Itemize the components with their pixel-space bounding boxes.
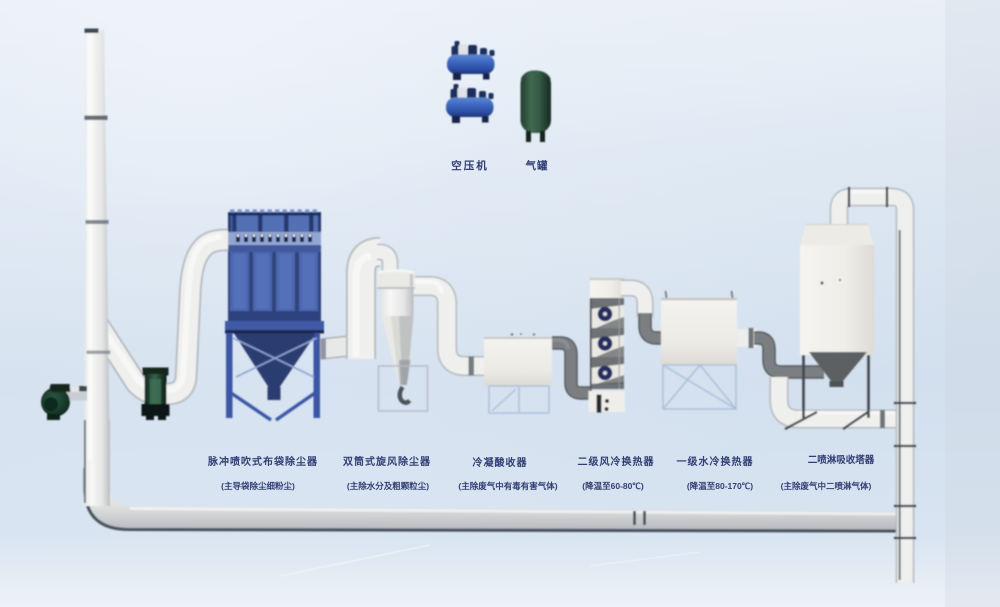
svg-text:(降温至60-80℃): (降温至60-80℃)	[582, 481, 644, 491]
svg-text:(主除废气中二喷淋气体): (主除废气中二喷淋气体)	[781, 481, 872, 491]
svg-text:空压机: 空压机	[451, 159, 489, 172]
svg-text:(降温至80-170℃): (降温至80-170℃)	[687, 481, 753, 491]
svg-text:气罐: 气罐	[525, 159, 549, 172]
svg-text:一级水冷换热器: 一级水冷换热器	[677, 455, 754, 468]
svg-text:冷凝酸收器: 冷凝酸收器	[473, 456, 528, 469]
svg-text:二级风冷换热器: 二级风冷换热器	[578, 455, 655, 468]
svg-text:脉冲喷吹式布袋除尘器: 脉冲喷吹式布袋除尘器	[207, 455, 318, 468]
svg-text:(主导袋除尘细粉尘): (主导袋除尘细粉尘)	[221, 481, 295, 491]
svg-text:(主除废气中有毒有害气体): (主除废气中有毒有害气体)	[458, 481, 557, 491]
svg-text:(主除水分及粗颗粒尘): (主除水分及粗颗粒尘)	[347, 481, 429, 491]
svg-text:二喷淋吸收塔器: 二喷淋吸收塔器	[808, 454, 875, 466]
svg-text:双筒式旋风除尘器: 双筒式旋风除尘器	[343, 455, 431, 468]
